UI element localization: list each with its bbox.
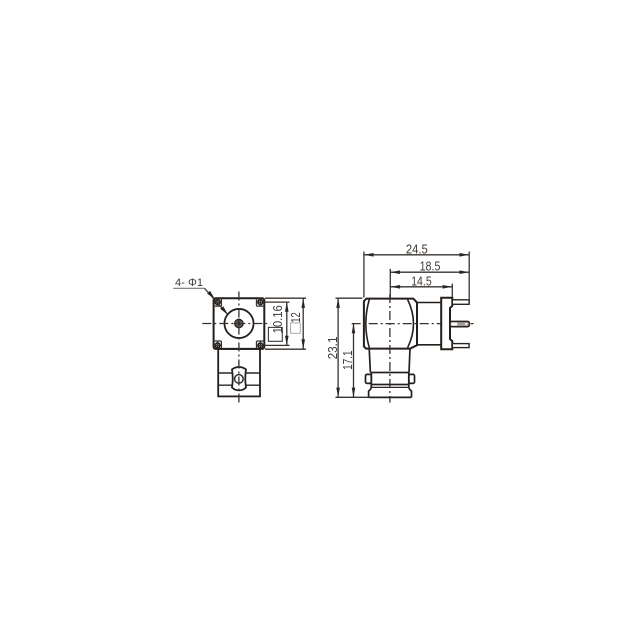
svg-text:12: 12	[288, 312, 303, 323]
svg-text:10.16: 10.16	[270, 305, 285, 333]
svg-text:4- Φ1: 4- Φ1	[175, 277, 203, 289]
svg-text:17.1: 17.1	[340, 350, 355, 370]
svg-text:24.5: 24.5	[406, 241, 428, 256]
svg-text:14.5: 14.5	[411, 274, 432, 289]
svg-text:23.1: 23.1	[325, 337, 340, 360]
svg-text:18.5: 18.5	[420, 259, 441, 274]
